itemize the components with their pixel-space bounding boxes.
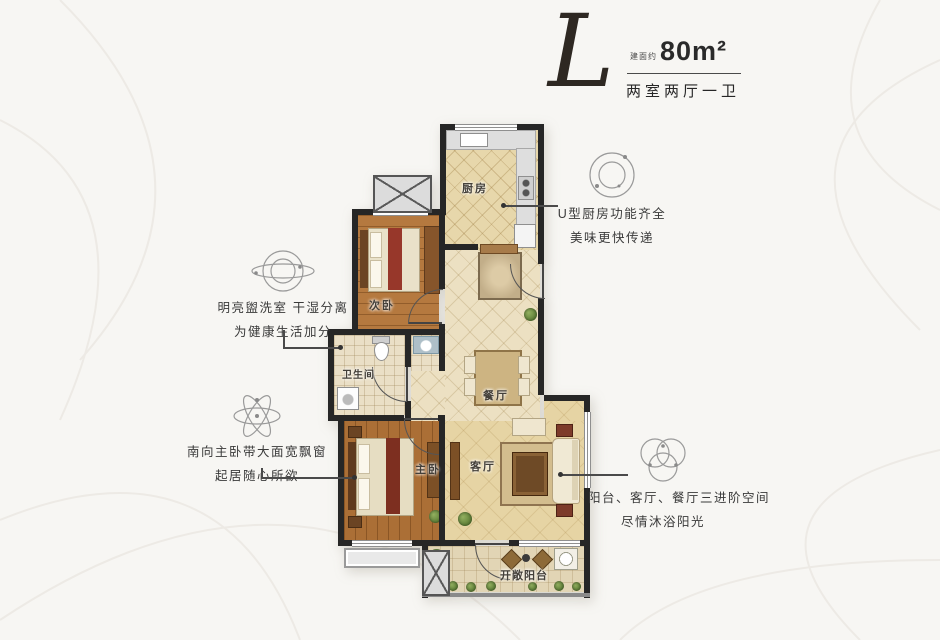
balcony-plant [466, 582, 476, 592]
living-room-floor [544, 401, 584, 421]
orbit-circles-icon [250, 246, 316, 296]
wall [338, 415, 344, 546]
washroom-note-leader [283, 347, 341, 349]
balcony-plant [572, 582, 581, 591]
master-bedroom-label: 主卧 [415, 461, 441, 477]
balcony-table [554, 548, 578, 570]
potted-plant [524, 308, 537, 321]
kitchen-note: U型厨房功能齐全 美味更快传递 [538, 148, 686, 250]
wall [440, 244, 478, 250]
nightstand [348, 426, 362, 438]
washing-machine [337, 387, 359, 410]
master-note: 南向主卧带大面宽飘窗 起居随心所欲 [185, 392, 329, 488]
pillow [370, 232, 382, 258]
balcony-plant [554, 581, 564, 591]
wall [440, 124, 446, 215]
balcony-plant [486, 581, 496, 591]
bed-runner [386, 438, 400, 514]
atom-orbits-icon [230, 392, 284, 440]
wall [338, 415, 404, 421]
equipment-platform [373, 175, 432, 213]
master-bay-window [352, 540, 412, 547]
leader-dot [338, 345, 343, 350]
bathroom-label: 卫生间 [342, 366, 375, 381]
kitchen-sink [460, 133, 488, 147]
wall [538, 298, 544, 395]
coffee-table [512, 452, 548, 496]
bed-runner [388, 228, 402, 290]
note-line: 南向主卧带大面宽飘窗 [185, 440, 329, 464]
bed-headboard [360, 230, 368, 288]
dining-chair [464, 356, 476, 374]
note-line: 美味更快传递 [538, 226, 686, 250]
pillow [370, 260, 382, 288]
note-line: 阳台、客厅、餐厅三进阶空间 [588, 486, 738, 510]
tv-cabinet [450, 442, 460, 500]
wall [439, 415, 445, 546]
side-table [556, 424, 573, 437]
living-balcony-window [519, 540, 580, 547]
dining-chair [518, 378, 530, 396]
layout-label: 两室两厅一卫 [626, 80, 740, 101]
concentric-circles-icon [585, 148, 639, 202]
potted-plant [458, 512, 472, 526]
wall [439, 215, 445, 289]
note-line: 起居随心所欲 [185, 464, 329, 488]
note-line: U型厨房功能齐全 [538, 202, 686, 226]
balcony-label: 开敞阳台 [500, 567, 548, 583]
washroom-note-leader [283, 330, 285, 348]
bay-window-ledge [344, 548, 420, 568]
wall [584, 546, 590, 598]
pillow [358, 444, 370, 474]
living-note: 阳台、客厅、餐厅三进阶空间 尽情沐浴阳光 [588, 436, 738, 534]
equipment-platform [422, 550, 450, 596]
dining-chair [518, 356, 530, 374]
kitchen-note-leader [504, 205, 558, 207]
wall [439, 329, 445, 371]
wall [580, 540, 590, 546]
stove [518, 176, 534, 200]
dining-chair [464, 378, 476, 396]
area-row: 建面约 80m² [630, 36, 727, 67]
second-bedroom-label: 次卧 [369, 297, 395, 313]
master-note-leader [261, 477, 355, 479]
balcony-table-small [522, 554, 530, 562]
pillow [358, 478, 370, 510]
sofa-back [572, 440, 578, 500]
area-value: 80m² [660, 36, 727, 67]
side-table [556, 504, 573, 517]
living-label: 客厅 [470, 458, 496, 474]
leader-dot [558, 472, 563, 477]
shoe-cabinet [480, 244, 518, 254]
living-note-leader [562, 474, 628, 476]
wall [509, 540, 519, 546]
title-divider [627, 73, 741, 74]
dining-label: 餐厅 [483, 387, 509, 403]
area-prefix-label: 建面约 [630, 51, 657, 62]
balcony-plant [528, 582, 537, 591]
wall [405, 335, 411, 367]
inner-hall-floor [411, 371, 445, 421]
nightstand [348, 516, 362, 528]
note-line: 明亮盥洗室 干湿分离 [213, 296, 353, 320]
venn-circles-icon [634, 436, 692, 486]
wall [422, 540, 475, 546]
leader-dot [352, 475, 357, 480]
plan-type-letter: L [548, 6, 614, 98]
washbasin [413, 336, 439, 354]
wall [544, 395, 590, 401]
wardrobe [424, 226, 440, 294]
kitchen-window [455, 124, 517, 131]
bench [512, 418, 546, 436]
leader-dot [501, 203, 506, 208]
note-line: 尽情沐浴阳光 [588, 510, 738, 534]
kitchen-label: 厨房 [462, 180, 488, 196]
page: L 建面约 80m² 两室两厅一卫 [0, 0, 940, 640]
